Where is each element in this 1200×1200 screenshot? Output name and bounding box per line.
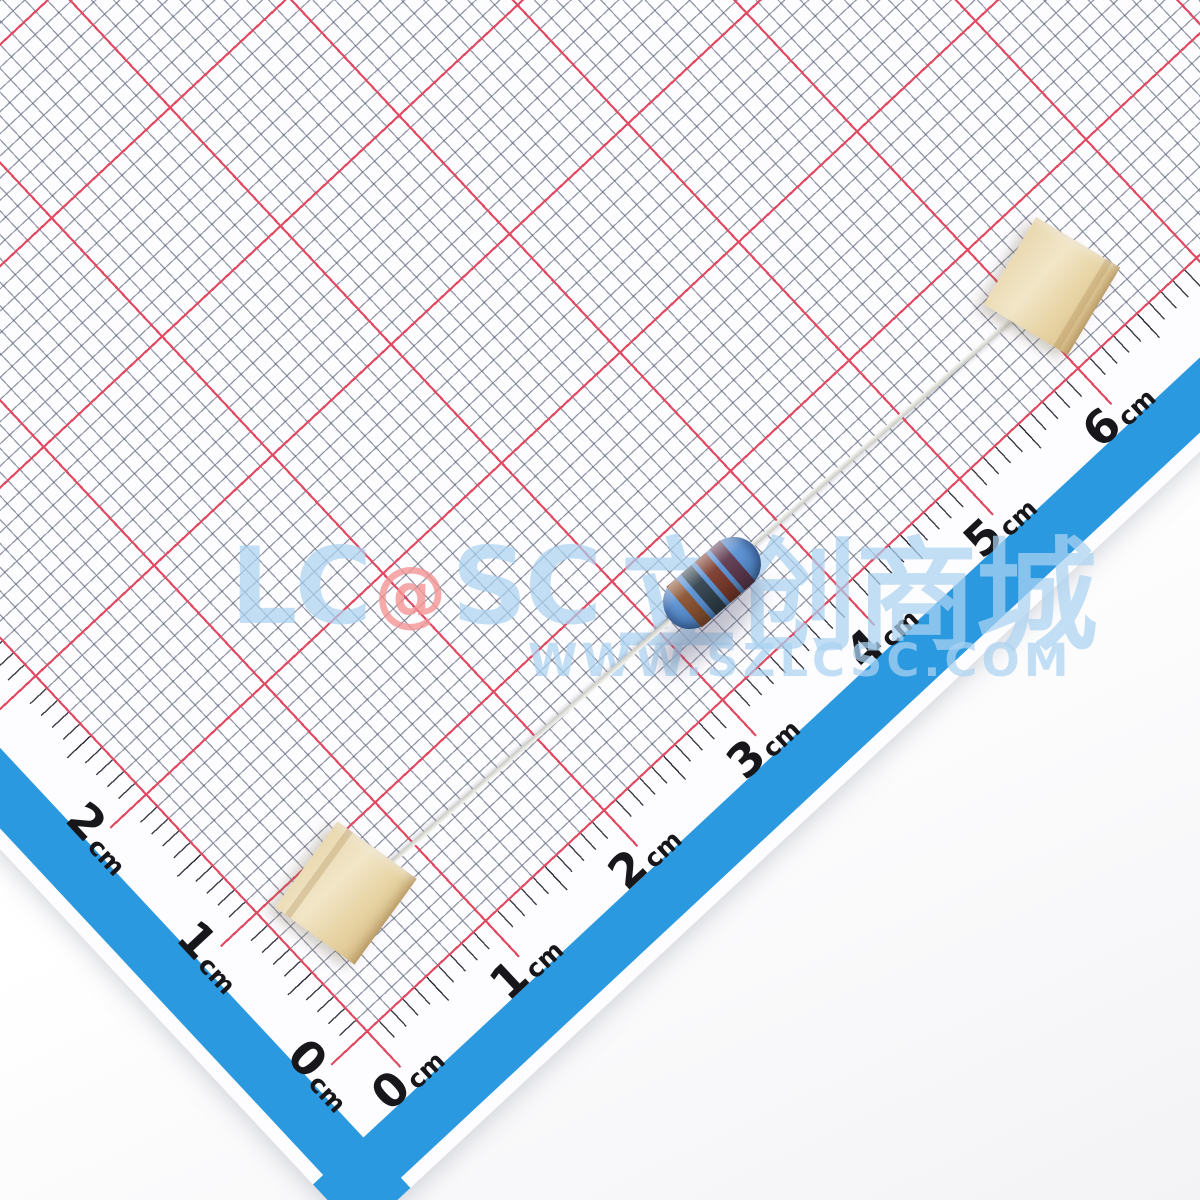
photo-stage: 0cm1cm2cm3cm4cm5cm6cm 0cm1cm2cm LC @ SC … [0, 0, 1200, 1200]
graph-paper: 0cm1cm2cm3cm4cm5cm6cm 0cm1cm2cm [0, 0, 1200, 1200]
resistor-band [709, 541, 755, 591]
resistor-band [695, 553, 741, 603]
resistor-band [666, 578, 712, 628]
resistor-band [681, 566, 727, 616]
